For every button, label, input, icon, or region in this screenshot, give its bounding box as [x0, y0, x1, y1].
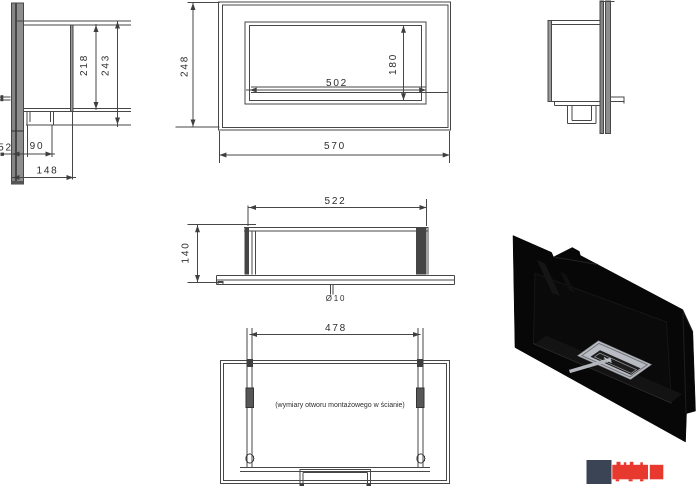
svg-text:148: 148 [36, 166, 58, 177]
svg-text:(wymiary otworu montażowego w: (wymiary otworu montażowego w ścianie) [275, 402, 405, 409]
svg-text:140: 140 [181, 241, 192, 263]
svg-text:243: 243 [101, 54, 112, 76]
svg-text:Ø10: Ø10 [326, 294, 347, 303]
svg-text:52: 52 [0, 143, 13, 154]
svg-text:218: 218 [79, 54, 90, 76]
svg-text:502: 502 [326, 78, 348, 89]
svg-text:180: 180 [388, 53, 399, 75]
svg-text:570: 570 [324, 141, 346, 152]
svg-text:90: 90 [30, 141, 45, 152]
svg-text:478: 478 [325, 323, 347, 334]
svg-text:248: 248 [180, 55, 191, 77]
svg-text:522: 522 [324, 196, 346, 207]
